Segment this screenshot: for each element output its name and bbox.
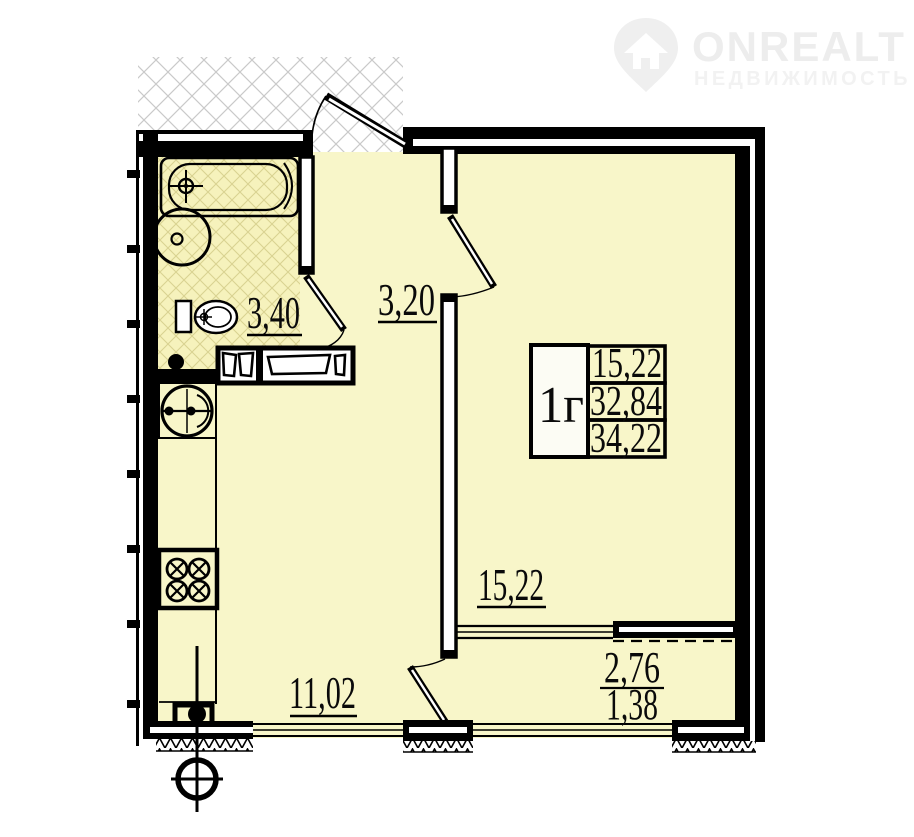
- onrealt-brand-text: ONREALT: [692, 23, 906, 70]
- bottom-facade: [143, 720, 756, 752]
- kitchen-sink: [161, 386, 212, 436]
- living-room-area-label: 15,22: [478, 559, 544, 610]
- pipe-riser-dot: [168, 354, 184, 370]
- top-wall-left-main: [136, 141, 313, 157]
- left-wall-main: [143, 130, 158, 738]
- top-wall-left-thin: [136, 130, 313, 134]
- living-partition-wall: [442, 295, 456, 657]
- kitchen-area-label: 11,02: [289, 667, 356, 718]
- onrealt-subtitle-text: НЕДВИЖИМОСТЬ: [694, 68, 911, 90]
- total-area-value: 34,22: [590, 416, 662, 462]
- right-wall-inner: [735, 154, 750, 740]
- right-wall-outer: [755, 127, 765, 742]
- top-wall-right-upper: [403, 127, 765, 139]
- toilet: [176, 301, 237, 333]
- balcony-door-block: [613, 621, 740, 641]
- hallway-area-label: 3,20: [378, 274, 435, 325]
- left-wall-outer-line: [136, 130, 139, 746]
- bathroom-area-label: 3,40: [247, 287, 300, 338]
- unit-type-label: 1г: [538, 377, 584, 434]
- floor-plan-page: ONREALT НЕДВИЖИМОСТЬ: [0, 0, 914, 837]
- bathroom-bottom-wall: [143, 369, 217, 383]
- balcony-counted-area-label: 1,38: [606, 680, 658, 729]
- closet-unit: [218, 348, 353, 383]
- hall-partition-stub: [442, 148, 456, 212]
- bathroom-right-wall: [300, 157, 313, 273]
- floor-plan-svg: ONREALT НЕДВИЖИМОСТЬ: [0, 0, 914, 837]
- onrealt-logo: ONREALT НЕДВИЖИМОСТЬ: [614, 18, 911, 92]
- unit-info-table: 1г 15,22 32,84 34,22: [531, 341, 665, 462]
- outside-hatch: [138, 57, 403, 152]
